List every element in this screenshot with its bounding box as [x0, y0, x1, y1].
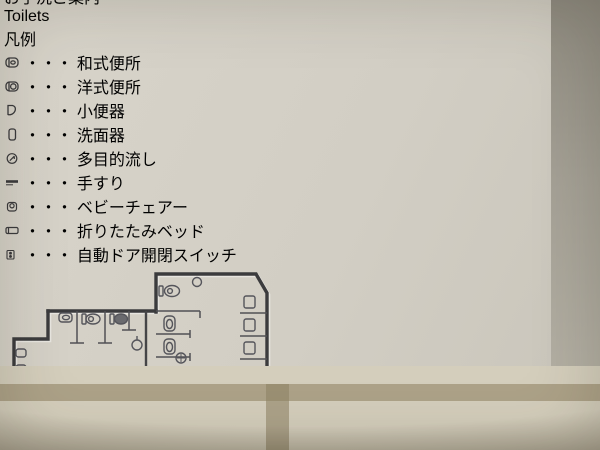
legend-label: 洋式便所	[77, 80, 141, 97]
photo-scene: お手洗ご案内 Toilets 凡例 ・・・ 和式便所 ・・・ 洋式便所 ・・・ …	[0, 0, 600, 450]
wall-below-sign	[0, 366, 600, 450]
baby-chair-icon	[244, 296, 255, 354]
legend-item-baby-chair: ・・・ ベビーチェアー	[4, 194, 556, 218]
multipurpose-sink-icon	[4, 152, 20, 165]
western-toilet-icon	[82, 314, 100, 324]
legend-item-squat-toilet: ・・・ 和式便所	[4, 50, 556, 74]
washbasin-icon	[176, 353, 186, 363]
legend-label: 和式便所	[77, 56, 141, 73]
legend-label: ベビーチェアー	[77, 200, 188, 217]
folding-bed-icon	[4, 224, 20, 237]
sign-subtitle: Toilets	[4, 8, 556, 26]
legend-item-western-toilet: ・・・ 洋式便所	[4, 74, 556, 98]
legend-item-urinal: ・・・ 小便器	[4, 98, 556, 122]
legend-item-folding-bed: ・・・ 折りたたみベッド	[4, 218, 556, 242]
photo-vignette	[0, 366, 600, 450]
squat-toilet-icon	[4, 56, 20, 69]
washbasin-icon	[4, 128, 20, 141]
urinal-icon	[4, 104, 20, 117]
washbasin-icon	[193, 278, 202, 287]
washbasin-icon	[132, 336, 142, 350]
handrail-icon	[4, 176, 20, 189]
sign-title: お手洗ご案内	[4, 0, 556, 8]
wall-right-strip	[551, 0, 600, 400]
legend-heading: 凡例	[4, 26, 556, 50]
legend-label: 折りたたみベッド	[77, 224, 205, 241]
toilet-guide-sign: お手洗ご案内 Toilets 凡例 ・・・ 和式便所 ・・・ 洋式便所 ・・・ …	[4, 0, 556, 382]
legend-label: 小便器	[77, 104, 125, 121]
baby-chair-icon	[4, 200, 20, 213]
auto-door-switch-icon	[4, 248, 20, 261]
legend-item-washbasin: ・・・ 洗面器	[4, 122, 556, 146]
squat-toilet-icon	[59, 313, 72, 322]
legend-item-auto-door-switch: ・・・ 自動ドア開閉スイッチ	[4, 242, 556, 266]
legend-label: 洗面器	[77, 128, 125, 145]
squat-toilet-icon	[164, 339, 175, 354]
squat-toilet-icon	[164, 316, 175, 331]
western-toilet-icon	[110, 314, 128, 324]
legend-label: 多目的流し	[77, 152, 157, 169]
legend-item-handrail: ・・・ 手すり	[4, 170, 556, 194]
western-toilet-icon	[159, 286, 180, 297]
legend-label: 手すり	[77, 176, 125, 193]
legend-label: 自動ドア開閉スイッチ	[77, 248, 237, 265]
western-toilet-icon	[4, 80, 20, 93]
legend-item-multipurpose-sink: ・・・ 多目的流し	[4, 146, 556, 170]
